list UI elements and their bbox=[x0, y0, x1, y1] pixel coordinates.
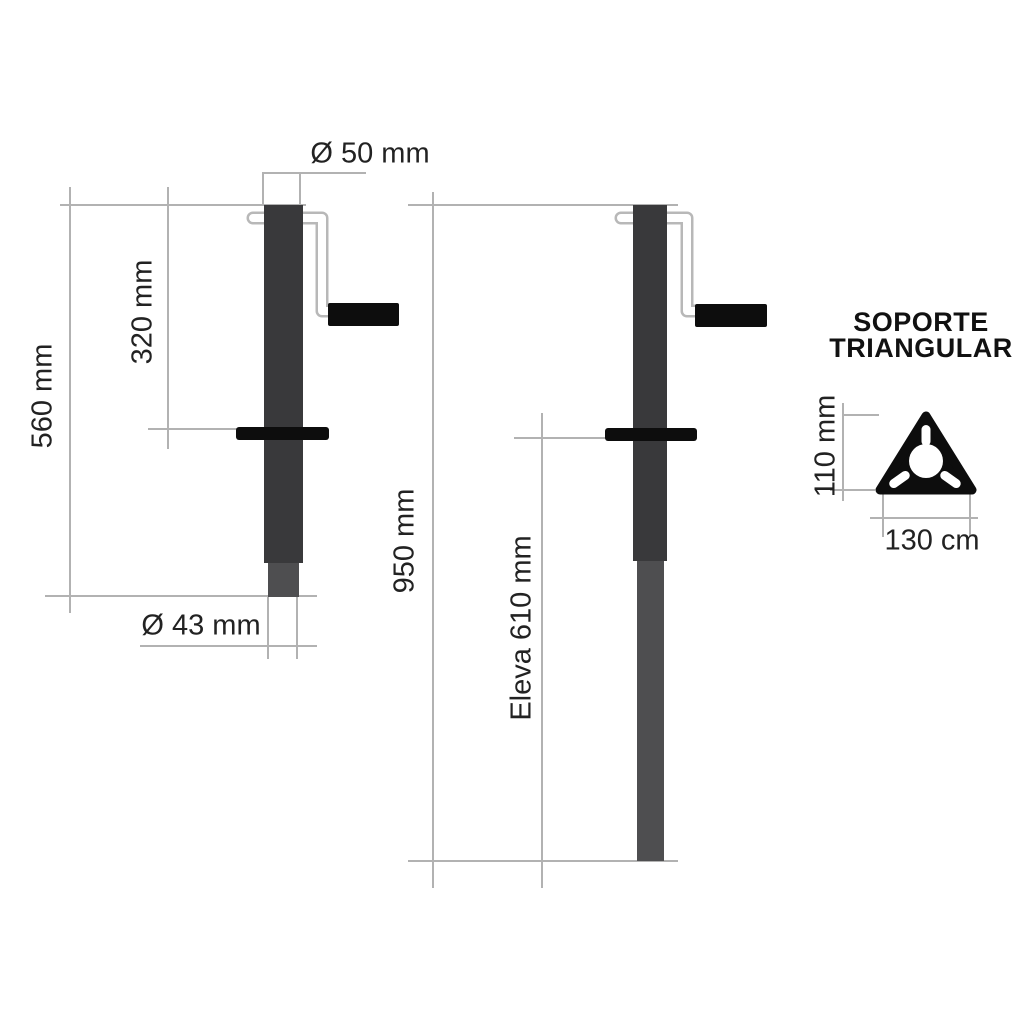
left-jack-560-dimension-line bbox=[69, 187, 71, 613]
left-jack-diameter50-extension-right bbox=[299, 172, 301, 206]
left-jack-inner-tube bbox=[268, 563, 299, 597]
support-top-slot bbox=[922, 425, 931, 446]
left-jack-outer-tube bbox=[264, 205, 303, 563]
triangular-support-drawing bbox=[860, 400, 990, 500]
jack-technical-drawing: Ø 50 mm 560 mm 320 mm Ø 43 mm 950 mm Ele… bbox=[0, 0, 1024, 1024]
right-jack-950-label: 950 mm bbox=[389, 489, 422, 594]
left-jack-320-collar-tick bbox=[148, 428, 238, 430]
support-title-line2: TRIANGULAR bbox=[829, 333, 1012, 364]
right-jack-eleva-label: Eleva 610 mm bbox=[506, 535, 539, 720]
left-jack-320-dimension-line bbox=[167, 187, 169, 449]
right-jack-950-dimension-line bbox=[432, 192, 434, 888]
left-jack-crank-grip bbox=[328, 303, 399, 326]
support-center-hole bbox=[909, 444, 943, 478]
support-130-label: 130 cm bbox=[884, 525, 979, 558]
left-jack-560-label: 560 mm bbox=[27, 344, 60, 449]
support-triangle-plate bbox=[880, 416, 972, 490]
support-110-label: 110 mm bbox=[810, 395, 843, 498]
right-jack-outer-tube bbox=[633, 205, 667, 561]
right-jack-eleva-collar-tick bbox=[514, 437, 606, 439]
crank-handles-layer bbox=[0, 0, 1024, 1024]
left-jack-mounting-collar bbox=[236, 427, 329, 440]
support-130-dimension-line bbox=[870, 517, 978, 519]
left-jack-diameter43-extension-right bbox=[296, 595, 298, 659]
left-jack-diameter43-label: Ø 43 mm bbox=[141, 610, 260, 643]
support-right-slot bbox=[938, 469, 962, 490]
support-left-slot bbox=[887, 469, 911, 490]
left-jack-diameter50-dimension-line bbox=[262, 172, 366, 174]
left-jack-diameter50-label: Ø 50 mm bbox=[310, 138, 429, 171]
left-jack-diameter50-extension-left bbox=[262, 172, 264, 206]
right-jack-inner-tube-extended bbox=[637, 561, 664, 861]
support-110-tick-top bbox=[842, 414, 879, 416]
left-jack-diameter43-dimension-line bbox=[140, 645, 317, 647]
right-jack-eleva-dimension-line bbox=[541, 413, 543, 888]
left-jack-diameter43-extension-left bbox=[267, 595, 269, 659]
right-jack-crank-grip bbox=[695, 304, 767, 327]
left-jack-320-label: 320 mm bbox=[127, 260, 160, 365]
right-jack-mounting-collar bbox=[605, 428, 697, 441]
